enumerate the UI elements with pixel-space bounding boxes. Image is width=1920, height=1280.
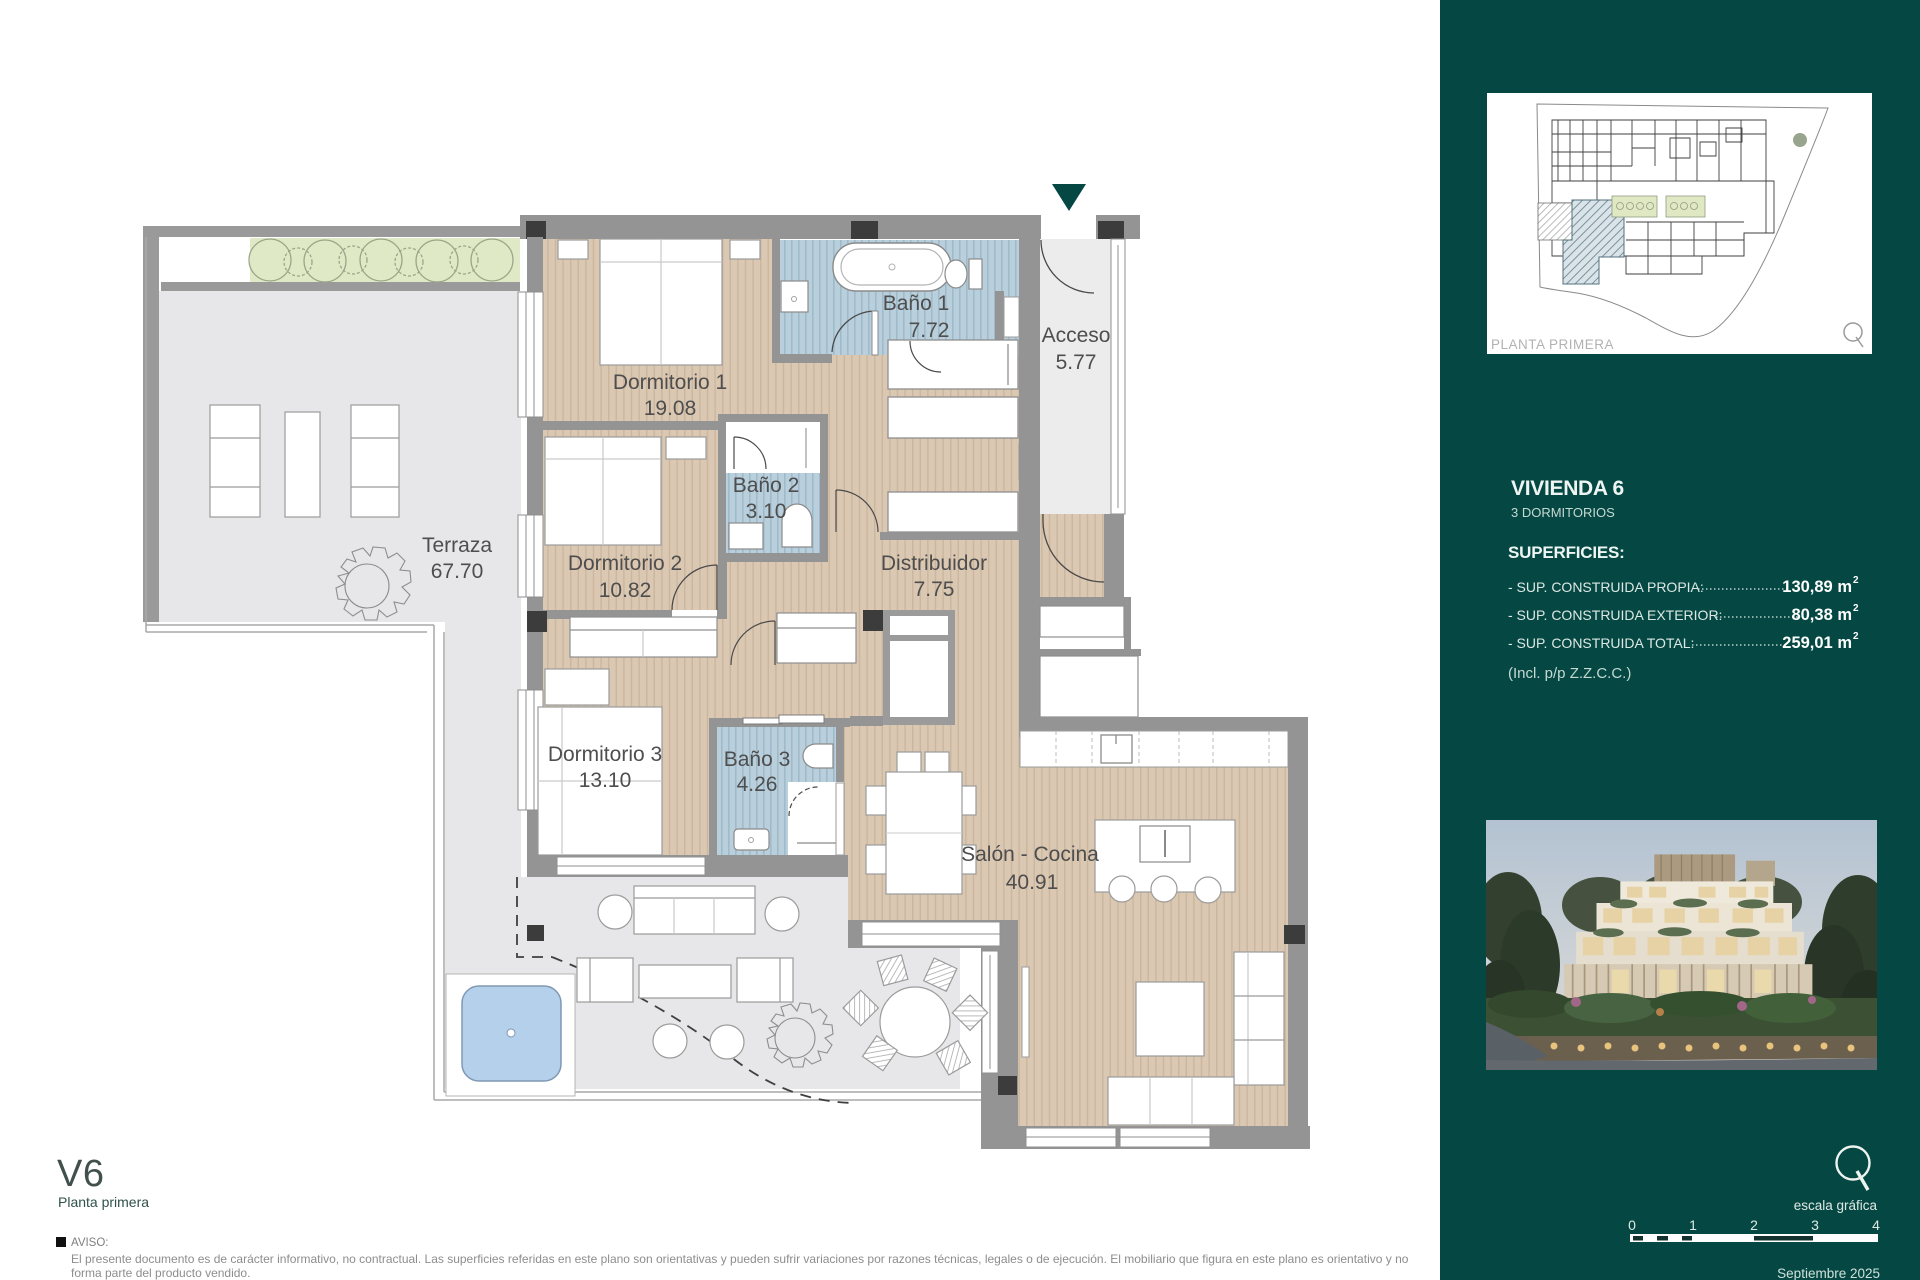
svg-text:40.91: 40.91 xyxy=(1006,871,1059,894)
svg-text:- SUP. CONSTRUIDA TOTAL:: - SUP. CONSTRUIDA TOTAL: xyxy=(1508,635,1694,651)
svg-text:VIVIENDA 6: VIVIENDA 6 xyxy=(1511,477,1624,500)
svg-text:5.77: 5.77 xyxy=(1056,351,1097,374)
svg-text:2: 2 xyxy=(1750,1217,1758,1233)
svg-text:67.70: 67.70 xyxy=(431,560,484,583)
svg-text:80,38 m: 80,38 m xyxy=(1791,606,1852,624)
svg-text:3.10: 3.10 xyxy=(746,500,787,523)
svg-text:- SUP. CONSTRUIDA EXTERIOR:: - SUP. CONSTRUIDA EXTERIOR: xyxy=(1508,607,1722,623)
svg-text:Septiembre 2025: Septiembre 2025 xyxy=(1777,1266,1880,1280)
svg-text:Dormitorio 1: Dormitorio 1 xyxy=(613,371,727,394)
svg-text:0: 0 xyxy=(1628,1217,1636,1233)
svg-text:2: 2 xyxy=(1853,631,1859,642)
svg-text:4.26: 4.26 xyxy=(737,773,778,796)
svg-text:Planta primera: Planta primera xyxy=(58,1194,149,1210)
svg-text:(Incl. p/p Z.Z.C.C.): (Incl. p/p Z.Z.C.C.) xyxy=(1508,665,1631,682)
svg-text:Dormitorio 2: Dormitorio 2 xyxy=(568,552,682,575)
svg-text:Terraza: Terraza xyxy=(422,534,492,557)
svg-text:- SUP. CONSTRUIDA PROPIA:: - SUP. CONSTRUIDA PROPIA: xyxy=(1508,579,1704,595)
svg-text:Dormitorio 3: Dormitorio 3 xyxy=(548,743,662,766)
svg-text:Distribuidor: Distribuidor xyxy=(881,552,987,575)
svg-text:escala gráfica: escala gráfica xyxy=(1794,1198,1878,1213)
svg-text:forma parte del producto vendi: forma parte del producto vendido. xyxy=(71,1266,250,1280)
svg-text:Baño 3: Baño 3 xyxy=(724,748,791,771)
svg-text:PLANTA PRIMERA: PLANTA PRIMERA xyxy=(1491,337,1614,352)
svg-text:1: 1 xyxy=(1689,1217,1697,1233)
svg-text:V6: V6 xyxy=(57,1153,104,1195)
svg-text:AVISO:: AVISO: xyxy=(71,1237,109,1249)
svg-text:SUPERFICIES:: SUPERFICIES: xyxy=(1508,543,1625,562)
svg-text:7.72: 7.72 xyxy=(909,319,950,342)
svg-text:El presente documento es de ca: El presente documento es de carácter inf… xyxy=(71,1252,1409,1266)
svg-text:13.10: 13.10 xyxy=(579,769,632,792)
svg-text:259,01 m: 259,01 m xyxy=(1782,634,1852,652)
svg-text:Baño 1: Baño 1 xyxy=(883,292,950,315)
svg-text:3: 3 xyxy=(1811,1217,1819,1233)
svg-text:10.82: 10.82 xyxy=(599,579,652,602)
svg-text:Acceso: Acceso xyxy=(1042,324,1111,347)
svg-text:Salón - Cocina: Salón - Cocina xyxy=(961,843,1099,866)
svg-text:2: 2 xyxy=(1853,603,1859,614)
svg-text:130,89 m: 130,89 m xyxy=(1782,578,1852,596)
svg-text:Baño 2: Baño 2 xyxy=(733,474,800,497)
svg-text:19.08: 19.08 xyxy=(644,397,697,420)
svg-text:3 DORMITORIOS: 3 DORMITORIOS xyxy=(1511,505,1615,520)
svg-text:4: 4 xyxy=(1872,1217,1880,1233)
svg-text:2: 2 xyxy=(1853,575,1859,586)
svg-text:7.75: 7.75 xyxy=(914,578,955,601)
